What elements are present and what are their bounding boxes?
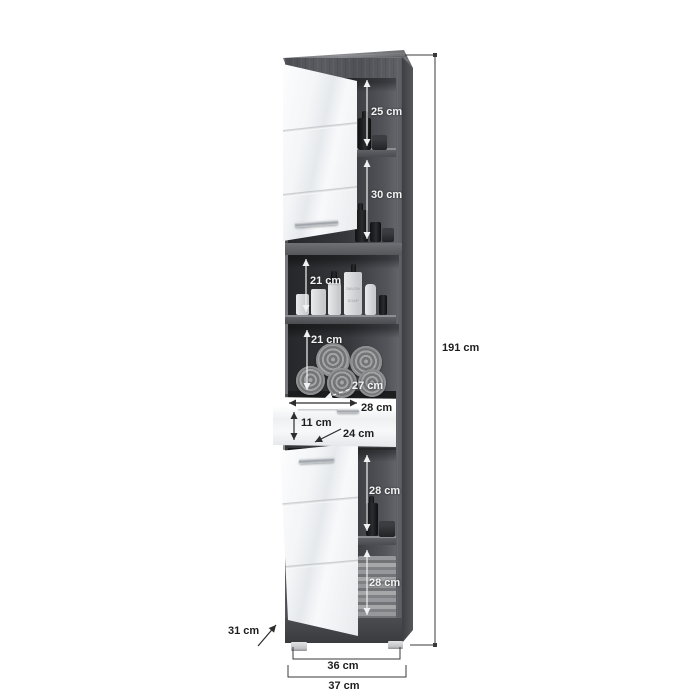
dim-191-label: 191 cm bbox=[442, 342, 479, 355]
soap-dispenser-label-1: SAVON bbox=[344, 286, 362, 291]
dim-21b-label: 21 cm bbox=[311, 334, 342, 347]
candle bbox=[311, 289, 326, 315]
cream-jar bbox=[372, 135, 387, 150]
dim-21a-label: 21 cm bbox=[310, 275, 341, 288]
cabinet-foot-left bbox=[291, 642, 307, 651]
lower-door-handle bbox=[299, 457, 334, 464]
small-bottle bbox=[370, 222, 381, 242]
dim-28b-label: 28 cm bbox=[369, 577, 400, 590]
dim-28-drawer-label: 28 cm bbox=[361, 402, 392, 415]
lotion-bottle bbox=[366, 503, 378, 536]
dim-36-line bbox=[293, 647, 400, 659]
dim-25-label: 25 cm bbox=[371, 106, 402, 119]
dim-191-dot-top bbox=[433, 53, 437, 57]
product-dimension-diagram: SAVON SOAP bbox=[0, 0, 700, 700]
towel-roll bbox=[296, 366, 325, 395]
cream-jar bbox=[379, 521, 395, 537]
door-groove bbox=[277, 559, 363, 569]
dim-27-label: 27 cm bbox=[352, 380, 383, 393]
upper-door bbox=[283, 64, 357, 241]
cosmetic-tube bbox=[365, 284, 376, 315]
rail-mid-upper bbox=[285, 243, 402, 255]
lower-door bbox=[280, 443, 358, 636]
dim-11-label: 11 cm bbox=[301, 417, 332, 430]
candle bbox=[296, 294, 309, 315]
soap-dispenser-label-2: SOAP bbox=[344, 298, 362, 303]
dim-31-arrow bbox=[258, 625, 276, 646]
door-groove bbox=[277, 496, 363, 506]
small-jar bbox=[382, 228, 394, 242]
dim-191-dot-bottom bbox=[433, 643, 437, 647]
dim-30-label: 30 cm bbox=[371, 189, 402, 202]
cabinet-side-panel bbox=[402, 57, 413, 643]
dim-24-label: 24 cm bbox=[343, 428, 374, 441]
shampoo-bottle bbox=[358, 118, 371, 150]
dropper-bottle bbox=[379, 295, 387, 315]
dim-36-label: 36 cm bbox=[318, 660, 368, 673]
shelf-board-open bbox=[285, 315, 396, 324]
door-groove bbox=[280, 122, 361, 133]
dim-28a-label: 28 cm bbox=[369, 485, 400, 498]
soap-dispenser: SAVON SOAP bbox=[344, 272, 362, 315]
dim-37-label: 37 cm bbox=[319, 680, 369, 693]
dim-31-label: 31 cm bbox=[228, 625, 259, 638]
cabinet-foot-right bbox=[388, 641, 403, 649]
upper-door-handle bbox=[295, 220, 338, 228]
drawer-handle bbox=[337, 409, 359, 413]
drawer-groove bbox=[298, 409, 338, 412]
door-groove bbox=[280, 186, 361, 197]
